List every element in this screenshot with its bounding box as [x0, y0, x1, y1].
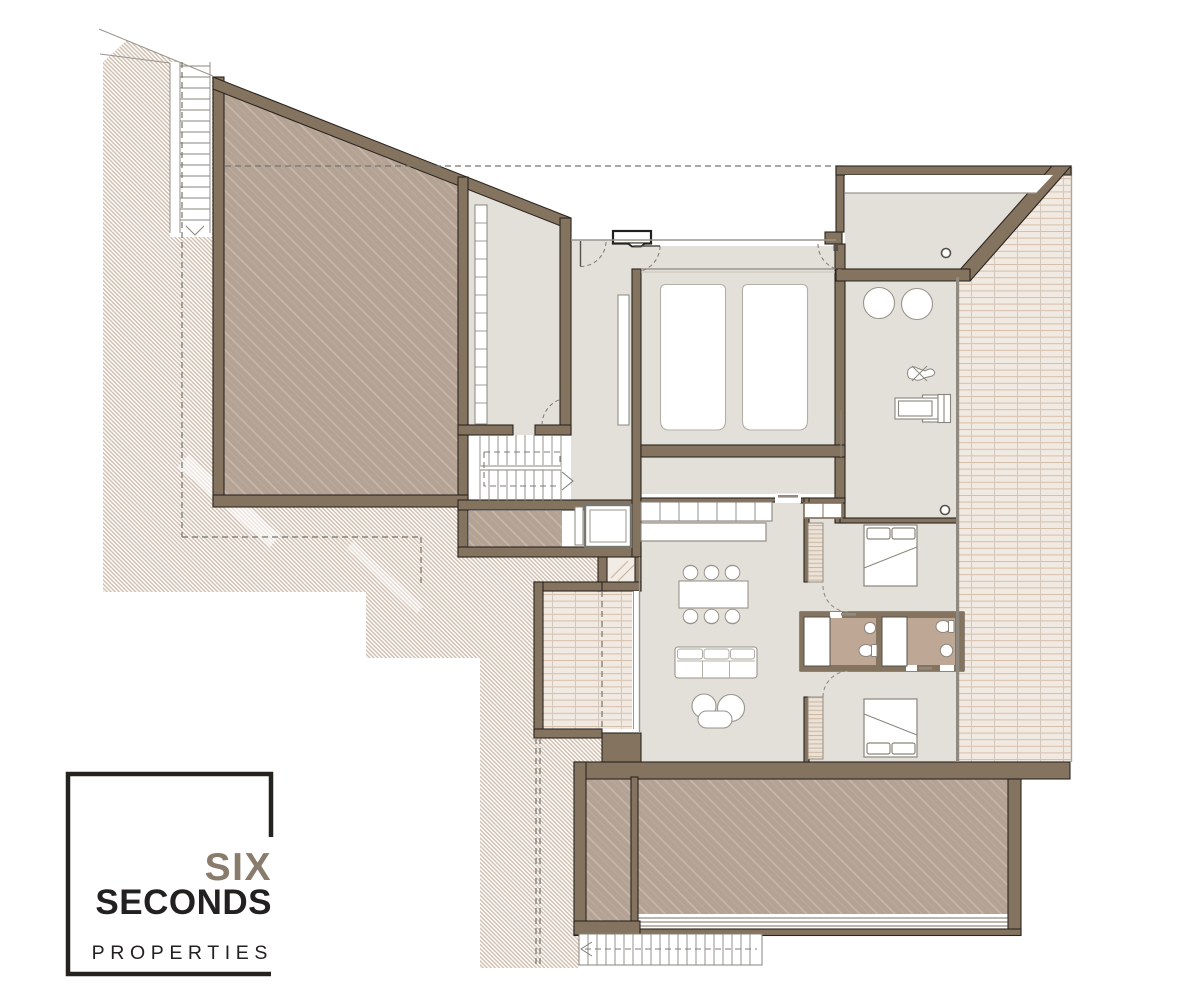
svg-text:PROPERTIES: PROPERTIES	[92, 942, 273, 964]
svg-text:SECONDS: SECONDS	[95, 883, 272, 922]
